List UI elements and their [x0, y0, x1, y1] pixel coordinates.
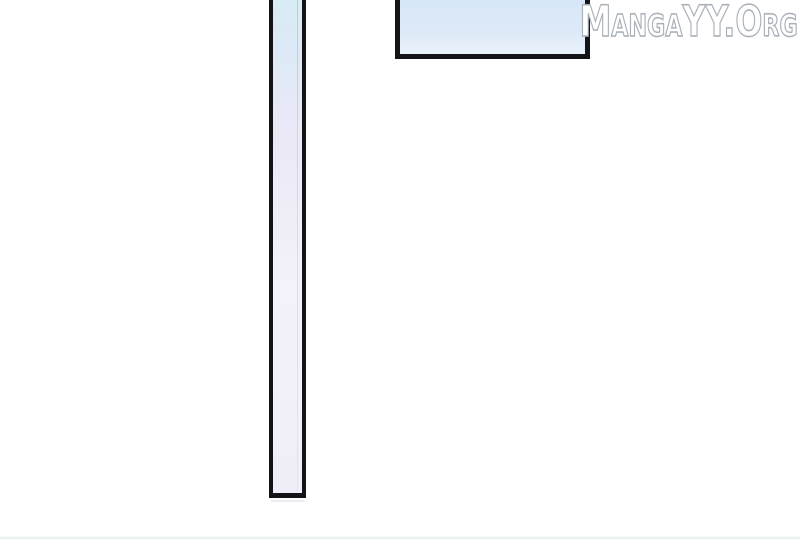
- panel-inner-highlight-line: [297, 0, 298, 493]
- manga-page: MangaYY.Org: [0, 0, 800, 539]
- panel-under-shadow: [271, 500, 305, 502]
- manga-panel-vertical: [269, 0, 306, 498]
- next-panel-edge-hint: [0, 535, 800, 539]
- site-watermark: MangaYY.Org: [580, 1, 798, 44]
- manga-panel-top-right: [395, 0, 590, 59]
